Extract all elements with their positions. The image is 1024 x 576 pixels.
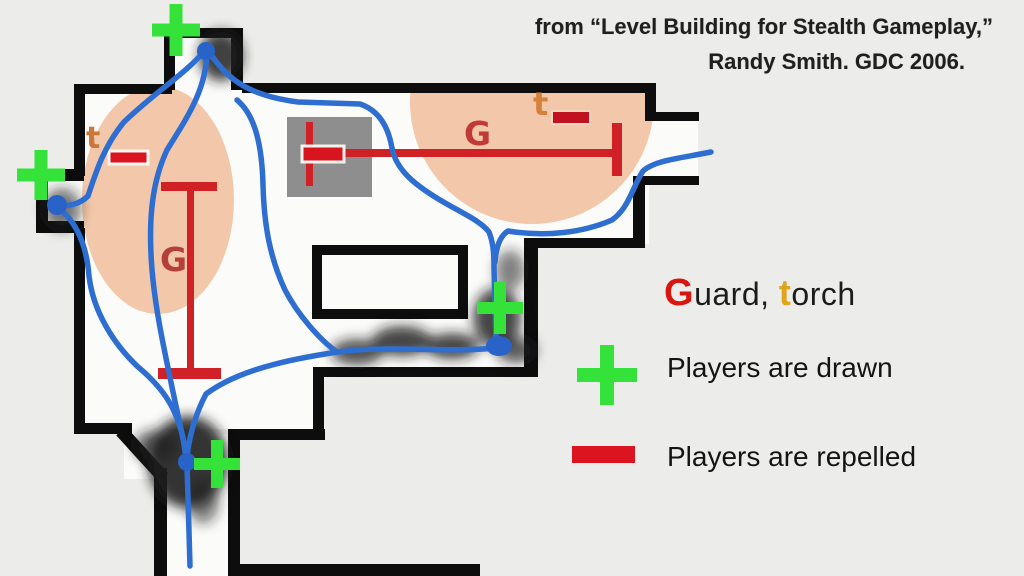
attribution-line2: Randy Smith. GDC 2006. bbox=[708, 49, 965, 75]
minus-icon bbox=[572, 446, 635, 463]
shadow-blob bbox=[134, 430, 178, 462]
shadow-blob bbox=[425, 333, 479, 359]
left-guard-label: G bbox=[160, 240, 187, 279]
beam-stem bbox=[187, 187, 194, 374]
wall-segment bbox=[313, 367, 324, 439]
legend-guard-initial: G bbox=[664, 272, 694, 314]
legend-guard-torch: Guard, torch bbox=[664, 272, 856, 315]
level-map: G t G t bbox=[0, 0, 1024, 576]
wall-segment bbox=[231, 429, 325, 440]
player-path bbox=[187, 464, 190, 566]
minus-icon bbox=[109, 151, 148, 164]
dot-icon bbox=[486, 336, 512, 356]
wall-segment bbox=[228, 429, 240, 576]
right-torch-label: t bbox=[533, 85, 548, 123]
beam-cap bbox=[612, 123, 622, 176]
legend-drawn-label: Players are drawn bbox=[667, 352, 893, 384]
legend-torch-rest: orch bbox=[791, 276, 855, 312]
wall-segment bbox=[74, 228, 85, 430]
dot-icon bbox=[178, 453, 196, 471]
wall-segment bbox=[242, 83, 656, 93]
guard-position-marker bbox=[302, 146, 344, 162]
wall-segment bbox=[527, 238, 644, 248]
wall-segment bbox=[74, 84, 85, 176]
legend-guard-rest: uard, bbox=[694, 276, 779, 312]
beam-stem bbox=[309, 149, 615, 157]
left-light-pool bbox=[82, 86, 234, 314]
minus-icon bbox=[552, 111, 590, 124]
wall-segment bbox=[313, 367, 538, 377]
legend-icons bbox=[572, 345, 637, 463]
legend-repelled-label: Players are repelled bbox=[667, 441, 916, 473]
dot-icon bbox=[197, 42, 215, 60]
attribution-line1: from “Level Building for Stealth Gamepla… bbox=[535, 14, 993, 40]
dot-icon bbox=[47, 195, 67, 215]
wall-segment bbox=[645, 112, 699, 121]
plus-icon bbox=[577, 345, 637, 405]
legend-torch-initial: t bbox=[779, 272, 792, 313]
right-guard-label: G bbox=[464, 114, 491, 153]
left-torch-label: t bbox=[86, 121, 100, 156]
wall-segment bbox=[645, 176, 699, 185]
wall-segment bbox=[228, 564, 480, 576]
inner-obstacle bbox=[317, 250, 463, 314]
slide: G t G t bbox=[0, 0, 1024, 576]
floor-right-door bbox=[649, 117, 698, 180]
